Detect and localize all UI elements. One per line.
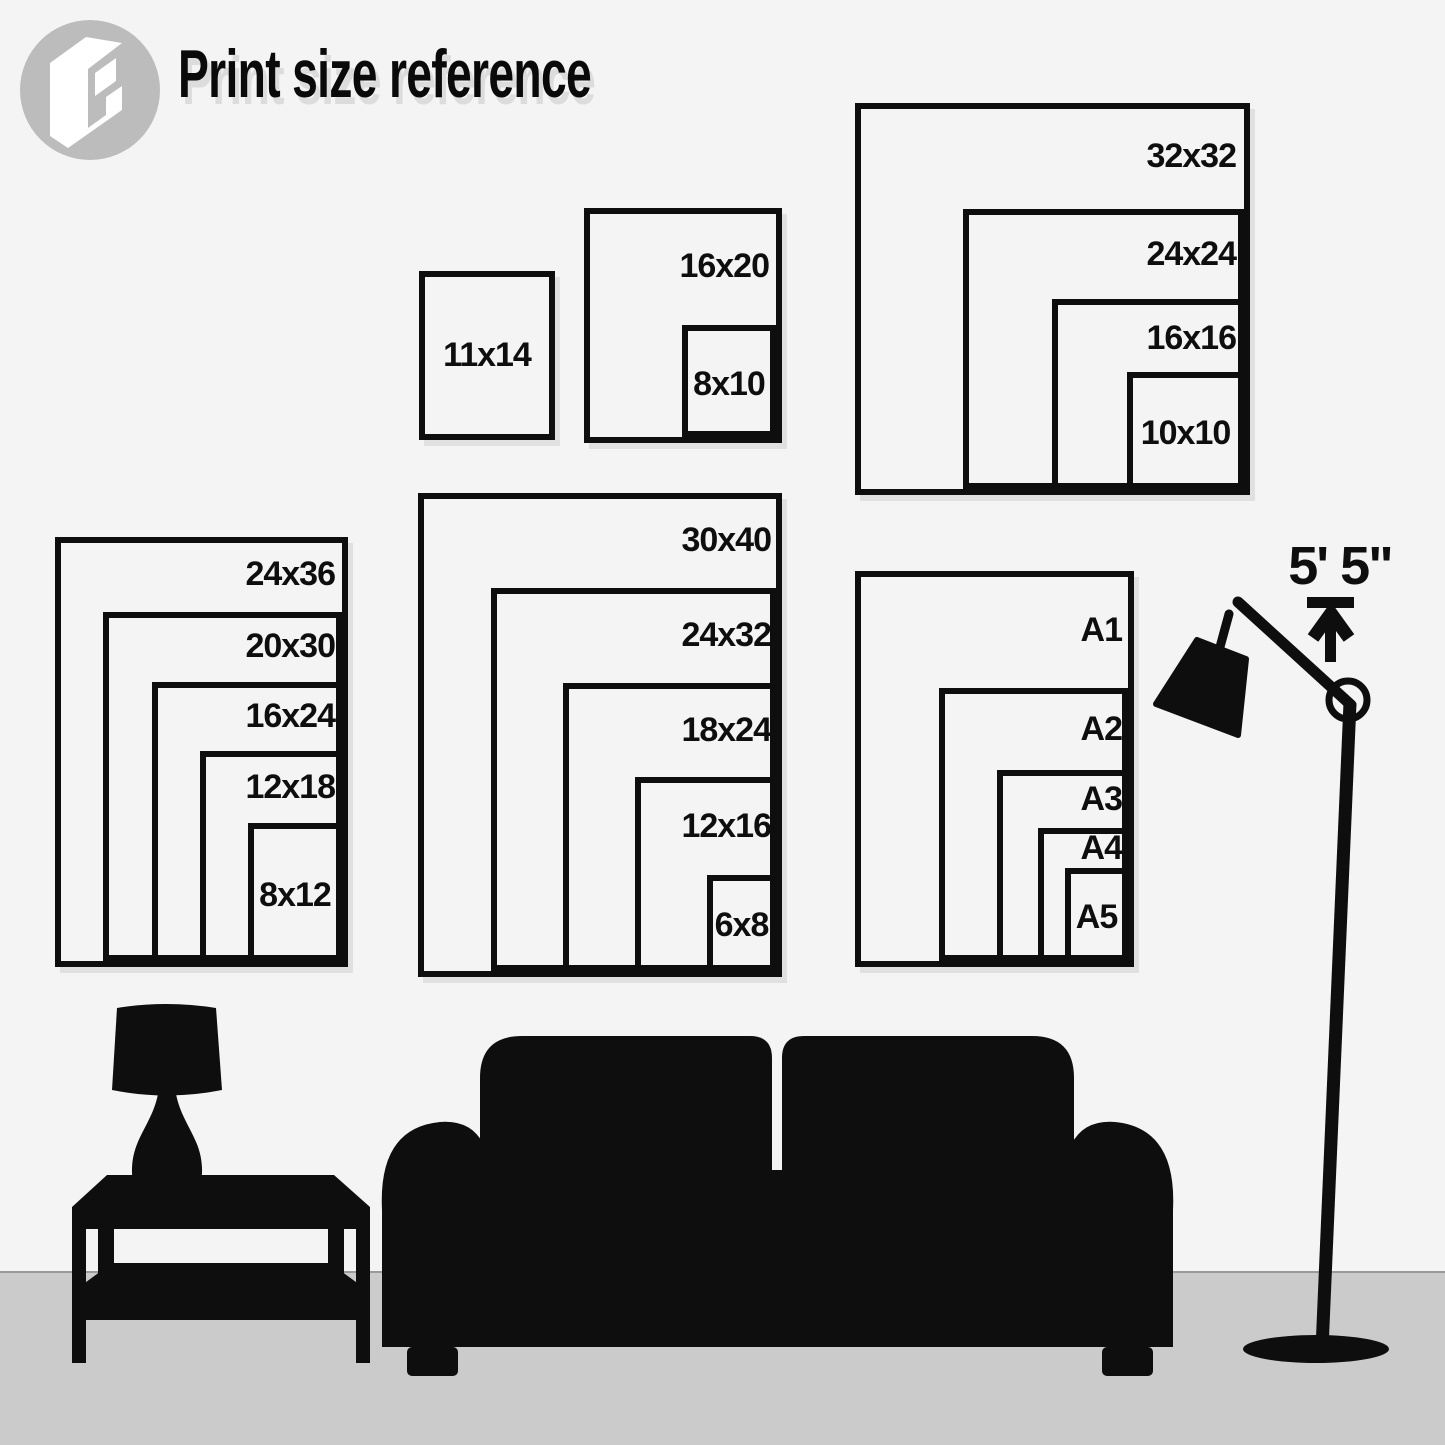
floor-lamp-silhouette: [1156, 602, 1389, 1363]
size-label: A3: [1000, 775, 1122, 823]
page-title: Print size reference: [178, 40, 591, 108]
size-label: A1: [950, 606, 1122, 654]
size-label: 24x24: [970, 230, 1236, 278]
size-label: 20x30: [110, 622, 335, 670]
size-label: 24x36: [110, 550, 335, 598]
height-marker-label: 5' 5": [1275, 538, 1405, 594]
size-label: 24x32: [500, 611, 771, 659]
height-arrow-icon: [1307, 597, 1354, 662]
displate-frame-logo-icon: [18, 18, 162, 162]
size-label: 12x16: [640, 802, 771, 850]
size-label: 16x16: [1060, 314, 1236, 362]
size-label: 11x14: [419, 331, 555, 379]
table-lamp-silhouette: [112, 1004, 222, 1209]
size-label: 30x40: [500, 516, 771, 564]
print-size-reference-poster: { "title": "Print size reference", "logo…: [0, 0, 1445, 1445]
size-label: 10x10: [1127, 409, 1244, 457]
size-label: A4: [1040, 824, 1122, 872]
size-label: A5: [1065, 893, 1128, 941]
size-label: 6x8: [707, 901, 776, 949]
floor-strip: [0, 1271, 1445, 1445]
size-label: 12x18: [205, 763, 335, 811]
size-label: 8x12: [248, 871, 342, 919]
size-label: 8x10: [682, 360, 776, 408]
size-label: 16x24: [160, 692, 335, 740]
size-label: A2: [950, 705, 1122, 753]
size-label: 32x32: [900, 132, 1236, 180]
size-label: 18x24: [570, 706, 771, 754]
size-label: 16x20: [590, 242, 769, 290]
